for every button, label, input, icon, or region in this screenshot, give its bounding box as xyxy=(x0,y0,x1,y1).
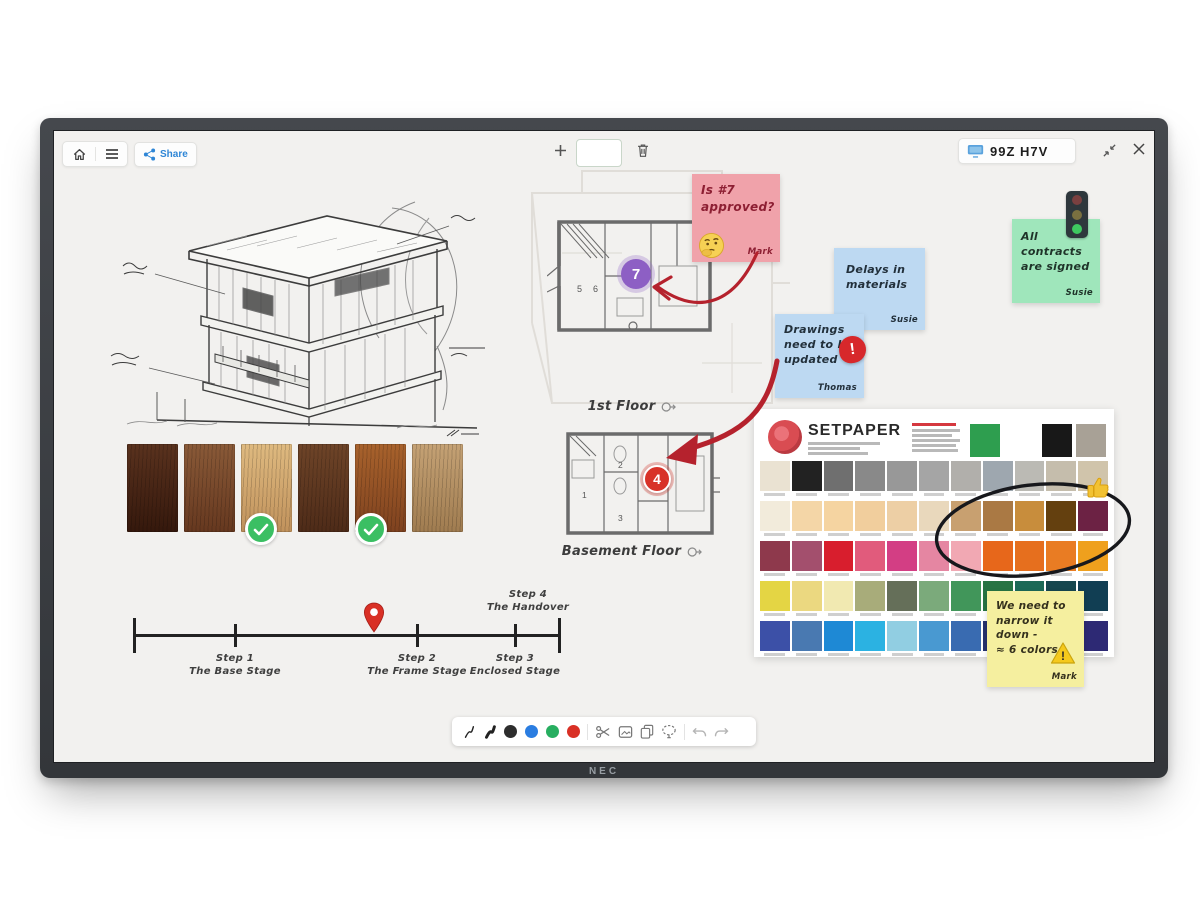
pen-color-dot[interactable] xyxy=(504,725,517,738)
floor-visibility-icon[interactable] xyxy=(660,401,676,413)
timeline-end xyxy=(133,618,136,653)
color-swatch[interactable] xyxy=(792,541,822,571)
color-swatch[interactable] xyxy=(792,461,822,491)
sticky-author: Susie xyxy=(1066,288,1093,298)
room-number: 5 xyxy=(577,284,582,294)
color-swatch[interactable] xyxy=(792,621,822,651)
warning-icon: ! xyxy=(1050,641,1076,665)
undo-button[interactable] xyxy=(692,726,707,738)
delete-page-button[interactable] xyxy=(636,143,650,158)
timeline-end xyxy=(558,618,561,653)
share-icon xyxy=(143,148,156,161)
timeline-step-3: Step 3Enclosed Stage xyxy=(460,652,570,678)
sticky-author: Susie xyxy=(891,315,918,325)
room-number: 1 xyxy=(582,490,587,500)
color-swatch[interactable] xyxy=(887,461,917,491)
fine-print xyxy=(808,442,880,445)
redo-button[interactable] xyxy=(714,726,729,738)
first-floor-text: 1st Floor xyxy=(588,399,656,414)
scissors-tool[interactable] xyxy=(595,725,611,739)
fine-print xyxy=(912,434,952,437)
pen-thin-tool[interactable] xyxy=(462,724,476,740)
fine-print xyxy=(912,429,960,432)
approved-check-icon[interactable] xyxy=(355,513,387,545)
color-swatch[interactable] xyxy=(760,501,790,531)
color-swatch[interactable] xyxy=(760,461,790,491)
color-swatch[interactable] xyxy=(824,461,854,491)
wood-sample[interactable] xyxy=(412,444,463,532)
fine-print xyxy=(808,452,868,455)
room-number: 6 xyxy=(593,284,598,294)
color-swatch[interactable] xyxy=(855,501,885,531)
header-swatch xyxy=(970,424,1000,457)
color-swatch[interactable] xyxy=(1046,461,1076,491)
color-swatch[interactable] xyxy=(824,501,854,531)
project-timeline: Step 1The Base Stage Step 2The Frame Sta… xyxy=(133,586,563,686)
color-swatch[interactable] xyxy=(1046,541,1076,571)
color-swatch[interactable] xyxy=(1015,501,1045,531)
share-label: Share xyxy=(160,149,188,160)
traffic-light-icon xyxy=(1066,191,1088,238)
divider xyxy=(684,724,685,740)
wood-sample[interactable] xyxy=(127,444,178,532)
close-button[interactable] xyxy=(1132,142,1146,156)
lasso-cut-tool[interactable] xyxy=(661,724,677,739)
room-code: 99Z H7V xyxy=(990,144,1048,159)
header-swatch xyxy=(1076,424,1106,457)
sticky-note-pink[interactable]: Is #7approved? Mark xyxy=(692,174,780,262)
share-button[interactable]: Share xyxy=(134,142,197,167)
wood-sample[interactable] xyxy=(298,444,349,532)
header-swatch xyxy=(1042,424,1072,457)
room-number: 2 xyxy=(618,460,623,470)
color-swatch[interactable] xyxy=(887,501,917,531)
room-code-badge: 99Z H7V xyxy=(958,138,1076,164)
fine-print xyxy=(808,447,860,450)
architecture-sketch xyxy=(97,196,497,446)
room-number: 3 xyxy=(618,513,623,523)
insert-image-tool[interactable] xyxy=(618,725,633,739)
color-swatch[interactable] xyxy=(855,621,885,651)
color-swatch[interactable] xyxy=(824,581,854,611)
sticky-author: Thomas xyxy=(818,383,857,393)
color-swatch[interactable] xyxy=(951,541,981,571)
color-swatch[interactable] xyxy=(760,541,790,571)
divider xyxy=(587,724,588,740)
color-swatch[interactable] xyxy=(951,501,981,531)
color-swatch[interactable] xyxy=(887,581,917,611)
color-swatch[interactable] xyxy=(1078,541,1108,571)
sticky-author: Mark xyxy=(748,247,773,257)
color-swatch[interactable] xyxy=(919,541,949,571)
fine-print xyxy=(912,439,960,442)
fine-print xyxy=(912,423,956,426)
setpaper-logo xyxy=(768,420,802,454)
divider xyxy=(95,147,96,161)
basement-floor-text: Basement Floor xyxy=(562,544,681,559)
color-swatch[interactable] xyxy=(824,621,854,651)
close-icon xyxy=(1132,142,1146,156)
whiteboard-screen: Share 99Z H7V xyxy=(53,130,1155,763)
thinking-face-emoji xyxy=(698,232,725,259)
color-swatch[interactable] xyxy=(1015,541,1045,571)
color-swatch[interactable] xyxy=(824,541,854,571)
color-swatch[interactable] xyxy=(887,541,917,571)
drawing-toolbar xyxy=(452,717,756,746)
color-swatch[interactable] xyxy=(919,461,949,491)
marker-7-number: 7 xyxy=(632,266,640,283)
color-swatch[interactable] xyxy=(760,621,790,651)
trash-icon xyxy=(636,143,650,158)
minimize-icon xyxy=(1102,143,1117,158)
svg-text:!: ! xyxy=(1061,649,1065,663)
marker-4-number: 4 xyxy=(653,471,661,487)
color-swatch[interactable] xyxy=(983,541,1013,571)
brand-logo: NEC xyxy=(40,766,1168,777)
timeline-tick xyxy=(234,624,237,647)
timeline-step-2: Step 2The Frame Stage xyxy=(362,652,472,678)
page-thumbnail[interactable] xyxy=(576,139,622,167)
thumbs-up-emoji xyxy=(1085,475,1111,501)
plan-marker-7[interactable]: 7 xyxy=(621,259,651,289)
color-swatch[interactable] xyxy=(919,581,949,611)
sticky-text: Delays inmaterials xyxy=(846,262,918,292)
sticky-note-colors[interactable]: We need tonarrow itdown -≈ 6 colors ! Ma… xyxy=(987,591,1084,687)
pen-color-dot[interactable] xyxy=(525,725,538,738)
color-swatch[interactable] xyxy=(792,581,822,611)
plus-icon xyxy=(554,144,567,157)
add-page-button[interactable] xyxy=(554,144,567,157)
color-swatch[interactable] xyxy=(983,461,1013,491)
color-swatch[interactable] xyxy=(887,621,917,651)
pen-color-dot[interactable] xyxy=(567,725,580,738)
color-swatch[interactable] xyxy=(919,501,949,531)
color-swatch[interactable] xyxy=(792,501,822,531)
home-menu-group xyxy=(62,141,128,167)
menu-button[interactable] xyxy=(105,148,119,160)
plan-marker-4[interactable]: 4 xyxy=(643,465,671,493)
color-swatch[interactable] xyxy=(951,581,981,611)
floor-visibility-icon[interactable] xyxy=(686,546,702,558)
color-swatch[interactable] xyxy=(1015,461,1045,491)
color-swatch[interactable] xyxy=(760,581,790,611)
sticky-text: Is #7approved? xyxy=(701,182,773,216)
pen-thick-tool[interactable] xyxy=(483,724,497,740)
display-bezel: Share 99Z H7V xyxy=(40,118,1168,778)
timeline-tick xyxy=(416,624,419,647)
timeline-step-4: Step 4The Handover xyxy=(473,588,583,614)
fine-print xyxy=(912,444,956,447)
color-swatch[interactable] xyxy=(1078,501,1108,531)
duplicate-tool[interactable] xyxy=(640,724,654,739)
color-swatch[interactable] xyxy=(855,461,885,491)
menu-icon xyxy=(105,148,119,160)
basement-floor-plan: 1 2 3 xyxy=(560,426,720,541)
timeline-line xyxy=(133,634,561,637)
minimize-button[interactable] xyxy=(1102,143,1117,158)
color-swatch[interactable] xyxy=(1046,501,1076,531)
first-floor-label: 1st Floor xyxy=(567,399,697,414)
home-icon xyxy=(72,147,87,162)
color-swatch[interactable] xyxy=(855,581,885,611)
wood-sample-row xyxy=(127,444,463,532)
home-button[interactable] xyxy=(72,147,87,162)
pen-color-dots xyxy=(504,725,580,738)
color-swatch[interactable] xyxy=(951,621,981,651)
color-swatch[interactable] xyxy=(951,461,981,491)
approved-check-icon[interactable] xyxy=(245,513,277,545)
color-swatch[interactable] xyxy=(919,621,949,651)
display-icon xyxy=(967,144,984,158)
setpaper-title: SETPAPER xyxy=(808,422,901,440)
location-pin-icon[interactable] xyxy=(361,602,387,634)
sticky-author: Mark xyxy=(1052,672,1077,682)
timeline-step-1: Step 1The Base Stage xyxy=(180,652,290,678)
wood-sample[interactable] xyxy=(184,444,235,532)
fine-print xyxy=(912,449,958,452)
basement-floor-label: Basement Floor xyxy=(552,544,712,559)
color-swatch[interactable] xyxy=(983,501,1013,531)
color-swatch[interactable] xyxy=(855,541,885,571)
timeline-tick xyxy=(514,624,517,647)
pen-color-dot[interactable] xyxy=(546,725,559,738)
